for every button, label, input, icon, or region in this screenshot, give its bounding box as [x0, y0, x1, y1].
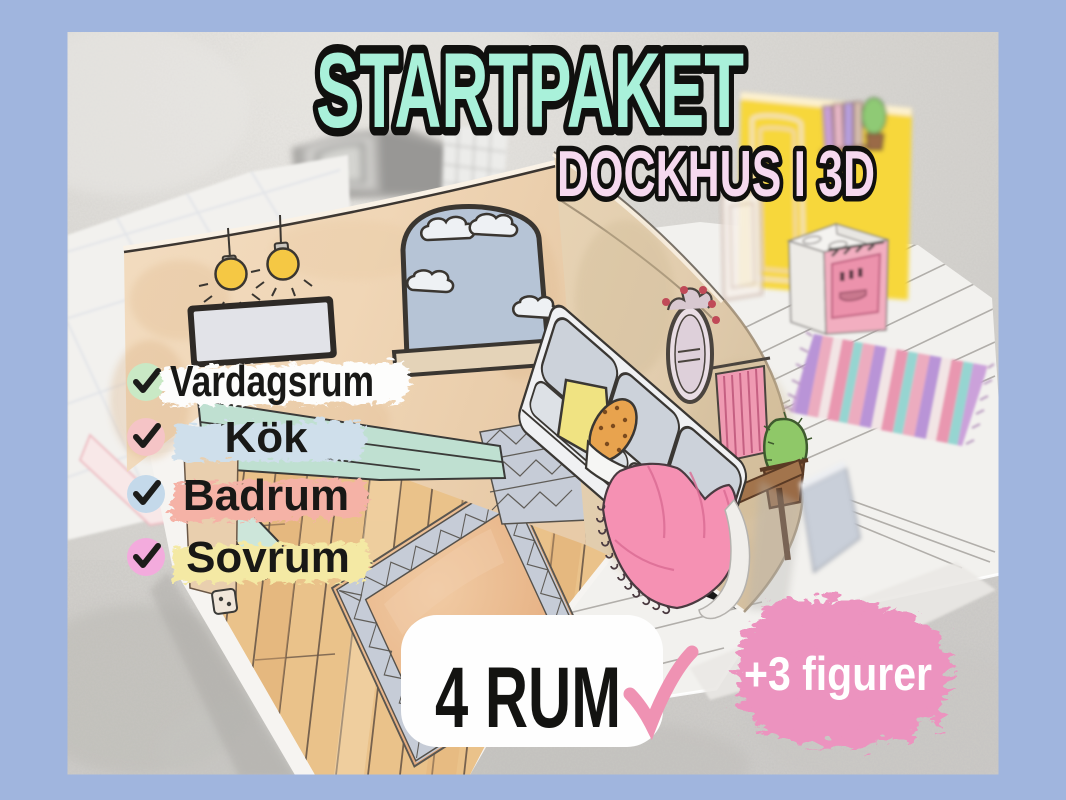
- svg-text:DOCKHUS I 3D: DOCKHUS I 3D: [557, 137, 875, 210]
- svg-text:Sovrum: Sovrum: [186, 533, 350, 582]
- svg-text:STARTPAKET: STARTPAKET: [316, 30, 744, 150]
- svg-text:+3 figurer: +3 figurer: [744, 647, 932, 700]
- svg-text:Badrum: Badrum: [183, 471, 349, 520]
- svg-text:4 RUM: 4 RUM: [435, 650, 621, 746]
- svg-text:Vardagsrum: Vardagsrum: [170, 357, 374, 406]
- svg-text:Kök: Kök: [224, 413, 308, 462]
